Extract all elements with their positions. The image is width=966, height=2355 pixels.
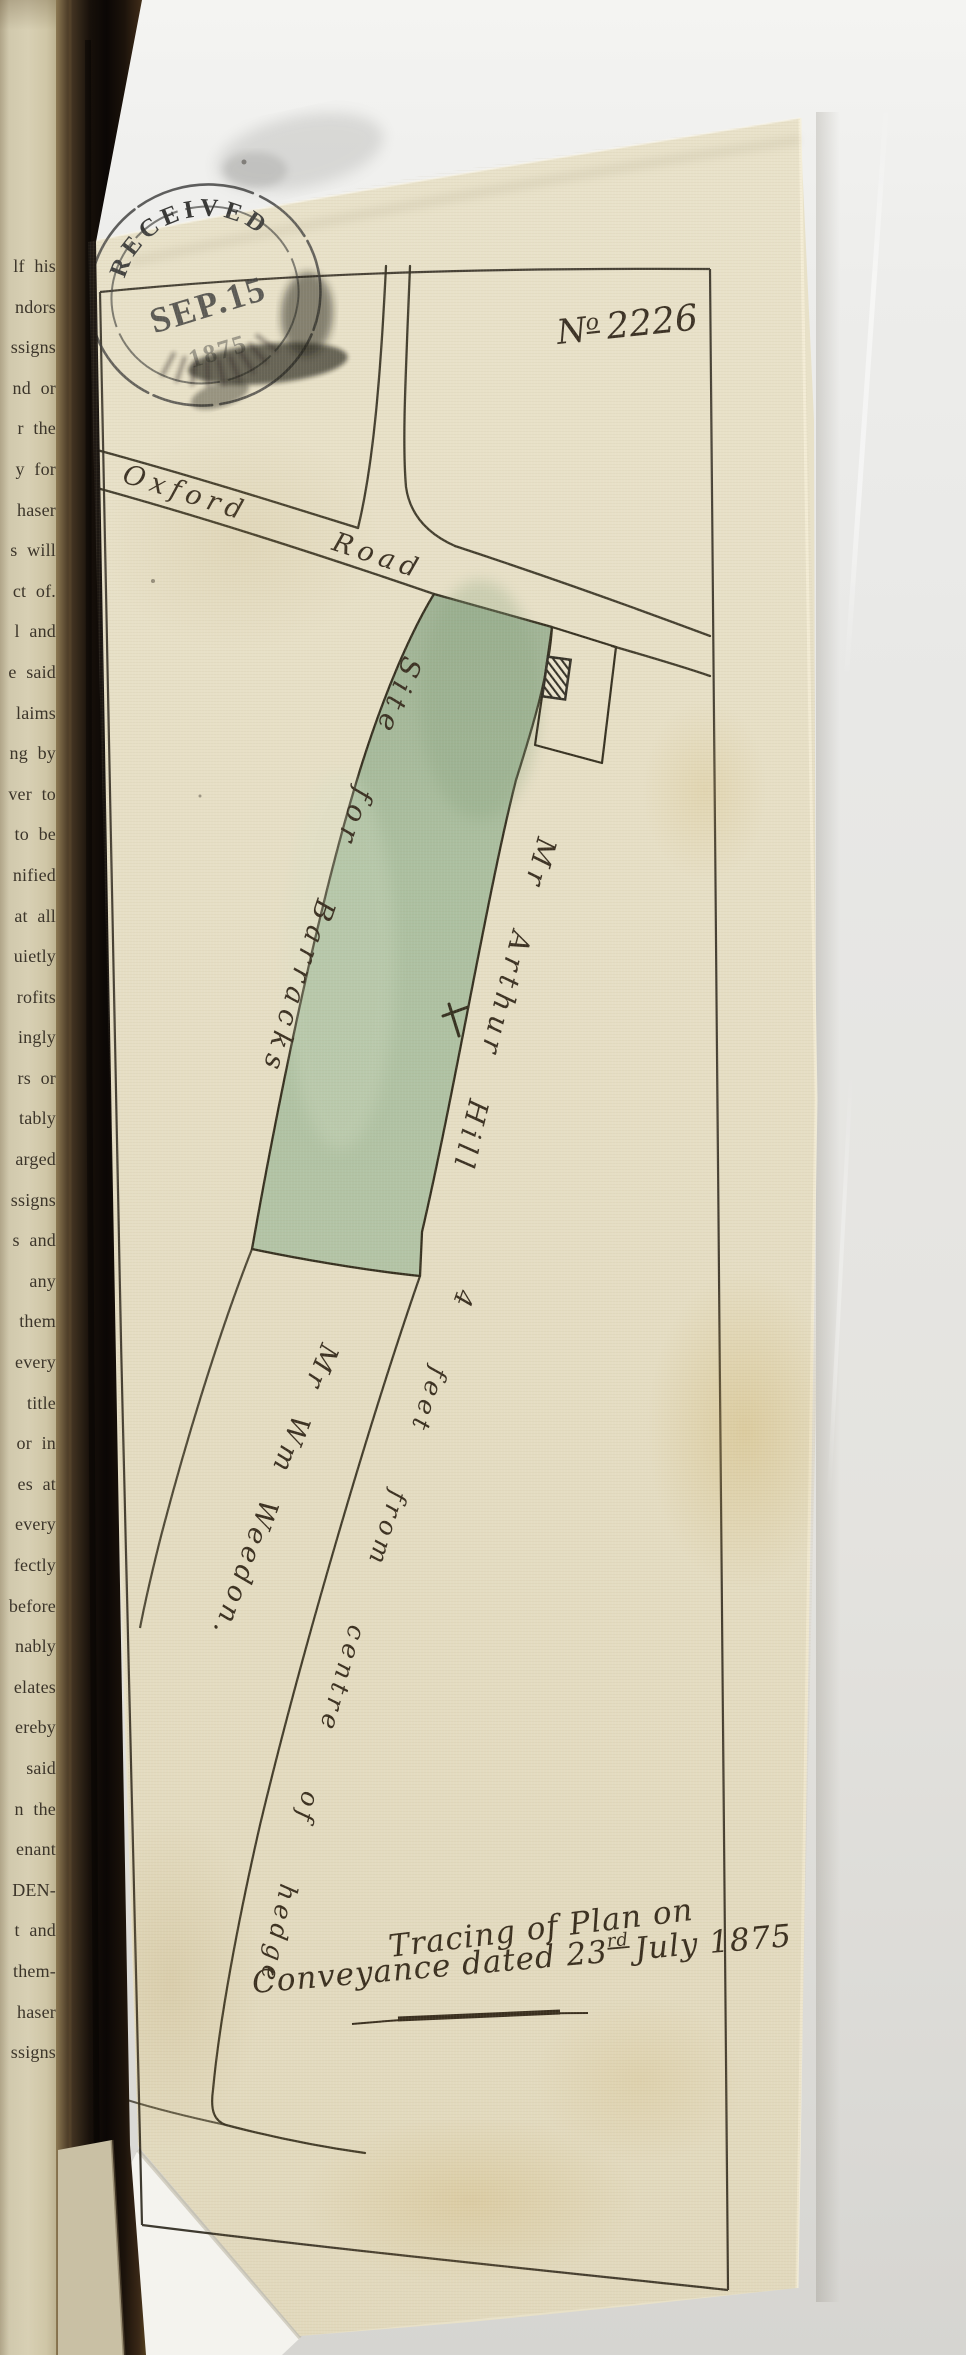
archival-photo: lf hisndorsssignsnd orr they forhasers w… (0, 0, 966, 2355)
parcel-wash-dark (420, 580, 540, 820)
plan-drawing: Oxford Road Site for Barracks Mr Arthur … (0, 0, 966, 2355)
tracing-paper (88, 118, 816, 2336)
building-footprint (542, 657, 570, 700)
